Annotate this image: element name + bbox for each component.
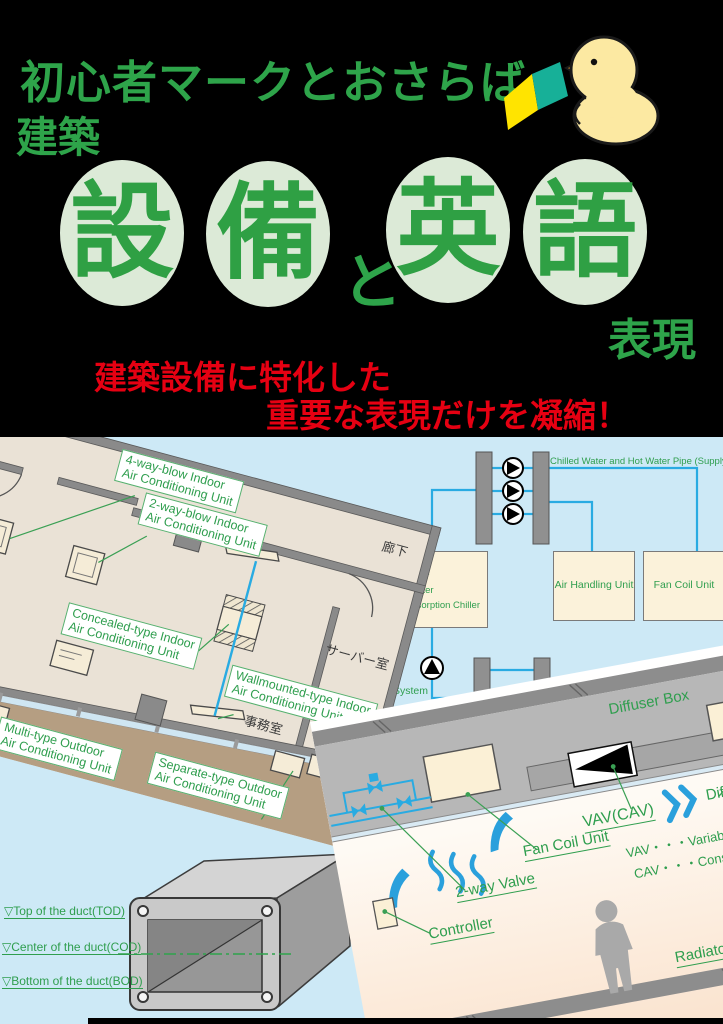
fan-coil-unit-box: Fan Coil Unit <box>643 551 723 621</box>
circle-char: 語 <box>533 180 637 284</box>
tagline-top: 初心者マークとおさらば <box>20 46 526 111</box>
duct-level-label-bod: ▽Bottom of the duct(BOD) <box>2 974 143 989</box>
circle-char: 備 <box>216 182 320 286</box>
poster-page: Chilled Water and Hot Water Pipe (Supply… <box>0 0 723 1024</box>
header-section: 初心者マークとおさらば 建築 設 備 英 語 と 表現 建築設備に特化した 重要… <box>0 0 723 437</box>
chick-icon <box>552 28 687 150</box>
title-circle-bi: 備 <box>206 161 330 307</box>
chevron-icons <box>664 786 696 820</box>
floor-slab <box>368 932 723 1024</box>
title-connector: と <box>342 234 402 321</box>
red-tagline-2: 重要な表現だけを凝縮！ <box>266 389 629 437</box>
supply-pipe-label: Chilled Water and Hot Water Pipe (Supply… <box>550 456 723 467</box>
kenchiku-title: 建築 <box>16 104 100 165</box>
hyogen-suffix: 表現 <box>608 304 696 368</box>
duct-level-label-cod: ▽Center of the duct(COD) <box>2 940 141 955</box>
circle-char: 設 <box>70 181 174 285</box>
air-handling-unit-box: Air Handling Unit <box>553 551 635 621</box>
title-circle-go: 語 <box>523 159 647 305</box>
bottom-black-strip <box>88 1018 723 1024</box>
duct-drawing <box>0 840 380 1024</box>
title-circle-ei: 英 <box>386 157 510 303</box>
person-silhouette <box>586 897 640 995</box>
title-circle-setsu: 設 <box>60 160 184 306</box>
circle-char: 英 <box>396 178 500 282</box>
duct-level-label-tod: ▽Top of the duct(TOD) <box>4 904 125 919</box>
